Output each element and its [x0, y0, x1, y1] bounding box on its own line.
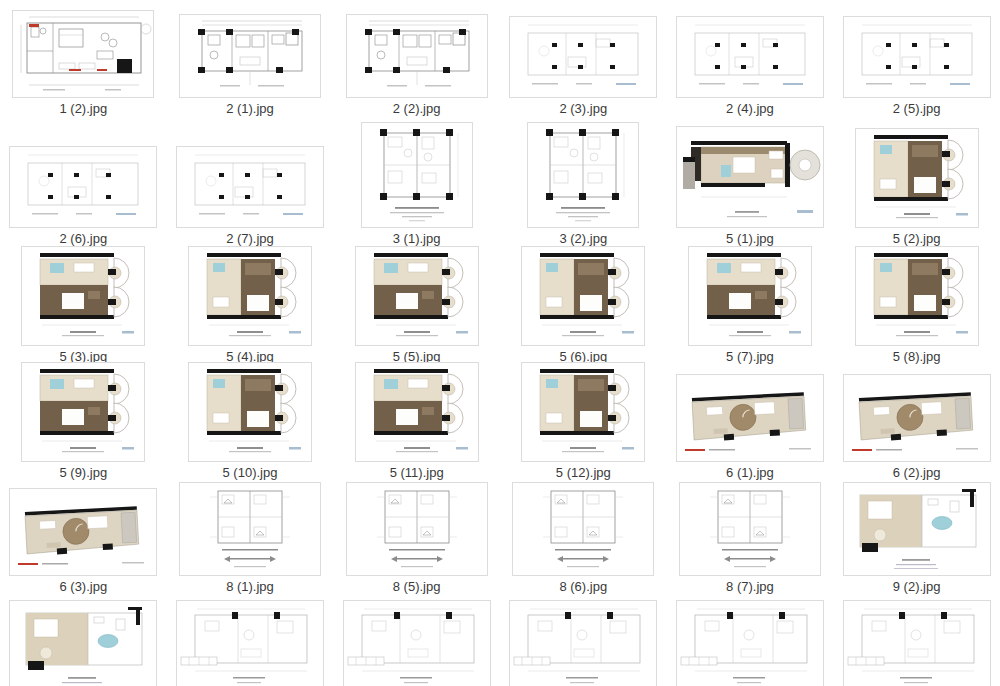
file-label: 6 (2).jpg [893, 464, 941, 482]
gallery-row: 2 (6).jpg 2 (7).jpg 3 (1).jpg 3 (2).jpg … [0, 118, 1000, 248]
file-item[interactable]: 2 (4).jpg [667, 0, 834, 118]
file-thumbnail [355, 362, 479, 462]
file-thumbnail [676, 16, 824, 98]
file-thumbnail [527, 122, 639, 228]
file-thumbnail [21, 246, 145, 346]
floor-plan-preview-icon [362, 123, 472, 227]
file-label: 5 (7).jpg [726, 348, 774, 366]
file-thumbnail [179, 482, 321, 576]
floor-plan-preview-icon [356, 247, 478, 345]
file-thumbnail [176, 146, 324, 228]
file-thumbnail [679, 482, 821, 576]
floor-plan-preview-icon [10, 489, 156, 575]
floor-plan-preview-icon [347, 15, 487, 97]
file-label: 2 (3).jpg [559, 100, 607, 118]
floor-plan-preview-icon [10, 147, 156, 227]
file-item[interactable]: 2 (7).jpg [167, 118, 334, 248]
file-thumbnail [9, 600, 157, 686]
file-item[interactable]: 2 (6).jpg [0, 118, 167, 248]
floor-plan-preview-icon [856, 129, 978, 227]
file-thumbnail [509, 600, 657, 686]
file-item[interactable] [500, 596, 667, 686]
file-label: 9 (2).jpg [893, 578, 941, 596]
file-item[interactable] [833, 596, 1000, 686]
file-item[interactable]: 5 (5).jpg [333, 248, 500, 366]
floor-plan-preview-icon [344, 601, 490, 686]
file-item[interactable]: 5 (4).jpg [167, 248, 334, 366]
file-item[interactable]: 6 (2).jpg [833, 366, 1000, 482]
file-item[interactable]: 2 (3).jpg [500, 0, 667, 118]
floor-plan-preview-icon [844, 601, 990, 686]
floor-plan-preview-icon [677, 601, 823, 686]
floor-plan-preview-icon [510, 17, 656, 97]
file-label: 5 (9).jpg [59, 464, 107, 482]
thumbnail-gallery: 1 (2).jpg 2 (1).jpg 2 (2).jpg 2 (3).jpg … [0, 0, 1000, 686]
file-thumbnail [676, 374, 824, 462]
file-label: 6 (3).jpg [59, 578, 107, 596]
file-label: 2 (5).jpg [893, 100, 941, 118]
floor-plan-preview-icon [22, 247, 144, 345]
floor-plan-preview-icon [844, 483, 990, 575]
file-thumbnail [21, 362, 145, 462]
file-thumbnail [355, 246, 479, 346]
floor-plan-preview-icon [347, 483, 487, 575]
file-item[interactable]: 5 (6).jpg [500, 248, 667, 366]
file-item[interactable]: 6 (3).jpg [0, 482, 167, 596]
floor-plan-preview-icon [180, 15, 320, 97]
file-label: 8 (7).jpg [726, 578, 774, 596]
file-item[interactable]: 3 (2).jpg [500, 118, 667, 248]
floor-plan-preview-icon [689, 247, 811, 345]
file-thumbnail [676, 600, 824, 686]
file-label: 2 (4).jpg [726, 100, 774, 118]
file-thumbnail [509, 16, 657, 98]
file-label: 5 (8).jpg [893, 348, 941, 366]
file-item[interactable]: 8 (5).jpg [333, 482, 500, 596]
floor-plan-preview-icon [522, 247, 644, 345]
floor-plan-preview-icon [844, 17, 990, 97]
floor-plan-preview-icon [513, 483, 653, 575]
floor-plan-preview-icon [177, 147, 323, 227]
floor-plan-preview-icon [677, 375, 823, 461]
floor-plan-preview-icon [177, 601, 323, 686]
floor-plan-preview-icon [677, 127, 823, 227]
floor-plan-preview-icon [356, 363, 478, 461]
file-item[interactable]: 5 (11).jpg [333, 366, 500, 482]
floor-plan-preview-icon [856, 247, 978, 345]
file-thumbnail [855, 246, 979, 346]
file-item[interactable]: 2 (1).jpg [167, 0, 334, 118]
file-thumbnail [843, 482, 991, 576]
file-item[interactable]: 5 (10).jpg [167, 366, 334, 482]
file-item[interactable]: 6 (1).jpg [667, 366, 834, 482]
file-thumbnail [9, 146, 157, 228]
floor-plan-preview-icon [10, 601, 156, 686]
file-item[interactable]: 5 (12).jpg [500, 366, 667, 482]
floor-plan-preview-icon [677, 17, 823, 97]
file-label: 1 (2).jpg [59, 100, 107, 118]
floor-plan-preview-icon [680, 483, 820, 575]
file-thumbnail [12, 10, 154, 98]
file-thumbnail [9, 488, 157, 576]
file-thumbnail [361, 122, 473, 228]
file-thumbnail [188, 246, 312, 346]
file-thumbnail [688, 246, 812, 346]
file-item[interactable]: 3 (1).jpg [333, 118, 500, 248]
file-item[interactable]: 8 (6).jpg [500, 482, 667, 596]
floor-plan-preview-icon [844, 375, 990, 461]
file-item[interactable]: 5 (9).jpg [0, 366, 167, 482]
file-thumbnail [343, 600, 491, 686]
file-thumbnail [843, 374, 991, 462]
file-item[interactable] [667, 596, 834, 686]
file-thumbnail [346, 14, 488, 98]
file-thumbnail [346, 482, 488, 576]
floor-plan-preview-icon [180, 483, 320, 575]
file-label: 8 (6).jpg [559, 578, 607, 596]
file-thumbnail [521, 362, 645, 462]
file-item[interactable]: 2 (5).jpg [833, 0, 1000, 118]
file-label: 8 (5).jpg [393, 578, 441, 596]
file-item[interactable]: 8 (7).jpg [667, 482, 834, 596]
gallery-row: 6 (3).jpg 8 (1).jpg 8 (5).jpg 8 (6).jpg … [0, 482, 1000, 596]
gallery-row: 1 (2).jpg 2 (1).jpg 2 (2).jpg 2 (3).jpg … [0, 0, 1000, 118]
file-thumbnail [843, 600, 991, 686]
file-label: 5 (10).jpg [223, 464, 278, 482]
file-item[interactable]: 1 (2).jpg [0, 0, 167, 118]
file-label: 2 (2).jpg [393, 100, 441, 118]
file-item[interactable]: 5 (2).jpg [833, 118, 1000, 248]
file-label: 8 (1).jpg [226, 578, 274, 596]
file-item[interactable] [0, 596, 167, 686]
file-thumbnail [843, 16, 991, 98]
file-thumbnail [188, 362, 312, 462]
floor-plan-preview-icon [189, 247, 311, 345]
file-item[interactable]: 2 (2).jpg [333, 0, 500, 118]
floor-plan-preview-icon [189, 363, 311, 461]
file-thumbnail [176, 600, 324, 686]
file-item[interactable] [167, 596, 334, 686]
file-label: 5 (11).jpg [390, 464, 444, 482]
floor-plan-preview-icon [13, 11, 153, 97]
file-label: 2 (1).jpg [226, 100, 274, 118]
floor-plan-preview-icon [522, 363, 644, 461]
gallery-row: 5 (9).jpg 5 (10).jpg 5 (11).jpg 5 (12).j… [0, 366, 1000, 482]
file-item[interactable]: 9 (2).jpg [833, 482, 1000, 596]
file-thumbnail [521, 246, 645, 346]
file-thumbnail [512, 482, 654, 576]
file-item[interactable]: 5 (1).jpg [667, 118, 834, 248]
file-item[interactable]: 5 (8).jpg [833, 248, 1000, 366]
file-label: 6 (1).jpg [726, 464, 774, 482]
file-thumbnail [676, 126, 824, 228]
file-thumbnail [179, 14, 321, 98]
floor-plan-preview-icon [22, 363, 144, 461]
floor-plan-preview-icon [510, 601, 656, 686]
gallery-row: 5 (3).jpg 5 (4).jpg 5 (5).jpg 5 (6).jpg [0, 248, 1000, 366]
floor-plan-preview-icon [528, 123, 638, 227]
file-item[interactable]: 5 (7).jpg [667, 248, 834, 366]
file-item[interactable]: 5 (3).jpg [0, 248, 167, 366]
file-thumbnail [855, 128, 979, 228]
file-label: 5 (12).jpg [556, 464, 611, 482]
file-item[interactable]: 8 (1).jpg [167, 482, 334, 596]
file-item[interactable] [333, 596, 500, 686]
gallery-row [0, 596, 1000, 686]
